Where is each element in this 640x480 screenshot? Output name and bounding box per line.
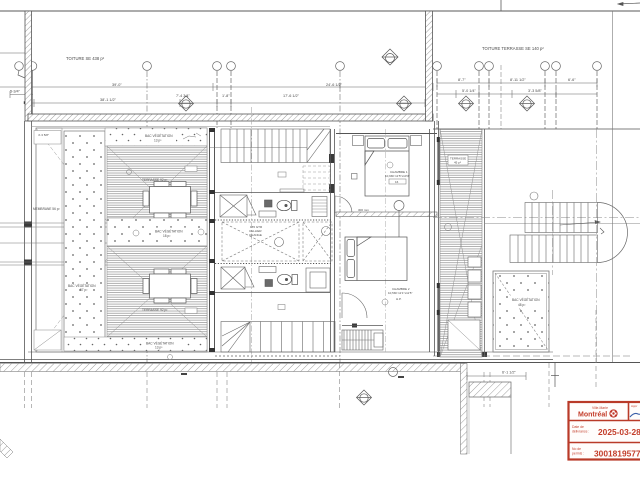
svg-text:1'-8": 1'-8" [222,94,230,98]
svg-text:39'-0": 39'-0" [112,83,122,87]
svg-text:6'-6": 6'-6" [568,78,576,82]
svg-text:délivrance :: délivrance : [572,430,589,434]
svg-text:BAC VÉGÉTATION: BAC VÉGÉTATION [155,229,183,234]
svg-text:300 mm: 300 mm [358,208,369,212]
svg-text:H.P.: H.P. [396,297,402,301]
svg-text:3'-3 5/8": 3'-3 5/8" [528,89,543,93]
svg-text:4'-3 5/8": 4'-3 5/8" [38,133,49,137]
svg-text:Date de: Date de [572,425,584,429]
svg-text:24'-6 1/2": 24'-6 1/2" [326,83,343,87]
svg-text:13 p²: 13 p² [155,346,162,350]
svg-text:No de: No de [572,447,581,451]
svg-text:6'-1 1/2": 6'-1 1/2" [502,371,517,375]
svg-text:MEMBRANE 56 p²: MEMBRANE 56 p² [33,207,60,211]
svg-text:18 p²: 18 p² [163,234,170,238]
svg-text:8'-11 1/2": 8'-11 1/2" [510,78,526,82]
svg-text:2025-03-28: 2025-03-28 [598,427,640,437]
svg-text:5'-0 1/4": 5'-0 1/4" [462,89,477,93]
svg-text:8'-7": 8'-7" [458,78,466,82]
svg-text:5-3/4": 5-3/4" [10,90,21,94]
svg-text:TERRASSE 92 p²: TERRASSE 92 p² [142,308,167,312]
svg-text:38'-1 1/2": 38'-1 1/2" [100,98,117,102]
svg-text:45 p²: 45 p² [454,161,461,165]
svg-text:Appr: Appr [631,404,637,408]
svg-text:Ville-Marie: Ville-Marie [592,406,608,410]
svg-text:TOITURE TERRASSE SE 140 p²: TOITURE TERRASSE SE 140 p² [482,46,544,51]
svg-text:permis :: permis : [572,452,584,456]
svg-text:57 p²: 57 p² [80,288,87,292]
svg-text:16: 16 [395,180,399,184]
svg-text:10,5M² 11'1"x11'5": 10,5M² 11'1"x11'5" [388,291,413,295]
svg-text:CHANGE: CHANGE [249,233,262,237]
svg-text:17'-6 1/2": 17'-6 1/2" [283,94,300,98]
svg-text:BAC VÉGÉTATION: BAC VÉGÉTATION [512,297,540,302]
svg-text:3001819577: 3001819577 [594,449,640,459]
svg-text:13 p²: 13 p² [154,139,161,143]
svg-text:Montréal: Montréal [578,412,607,419]
svg-text:BAC VÉGÉTATION: BAC VÉGÉTATION [145,133,173,138]
svg-text:10,9M² 11'5"x10'3": 10,9M² 11'5"x10'3" [385,174,410,178]
svg-text:TOITURE SE 438 p²: TOITURE SE 438 p² [66,56,105,61]
svg-text:7'-4 3/4": 7'-4 3/4" [176,94,191,98]
svg-text:48 p²: 48 p² [518,303,525,307]
